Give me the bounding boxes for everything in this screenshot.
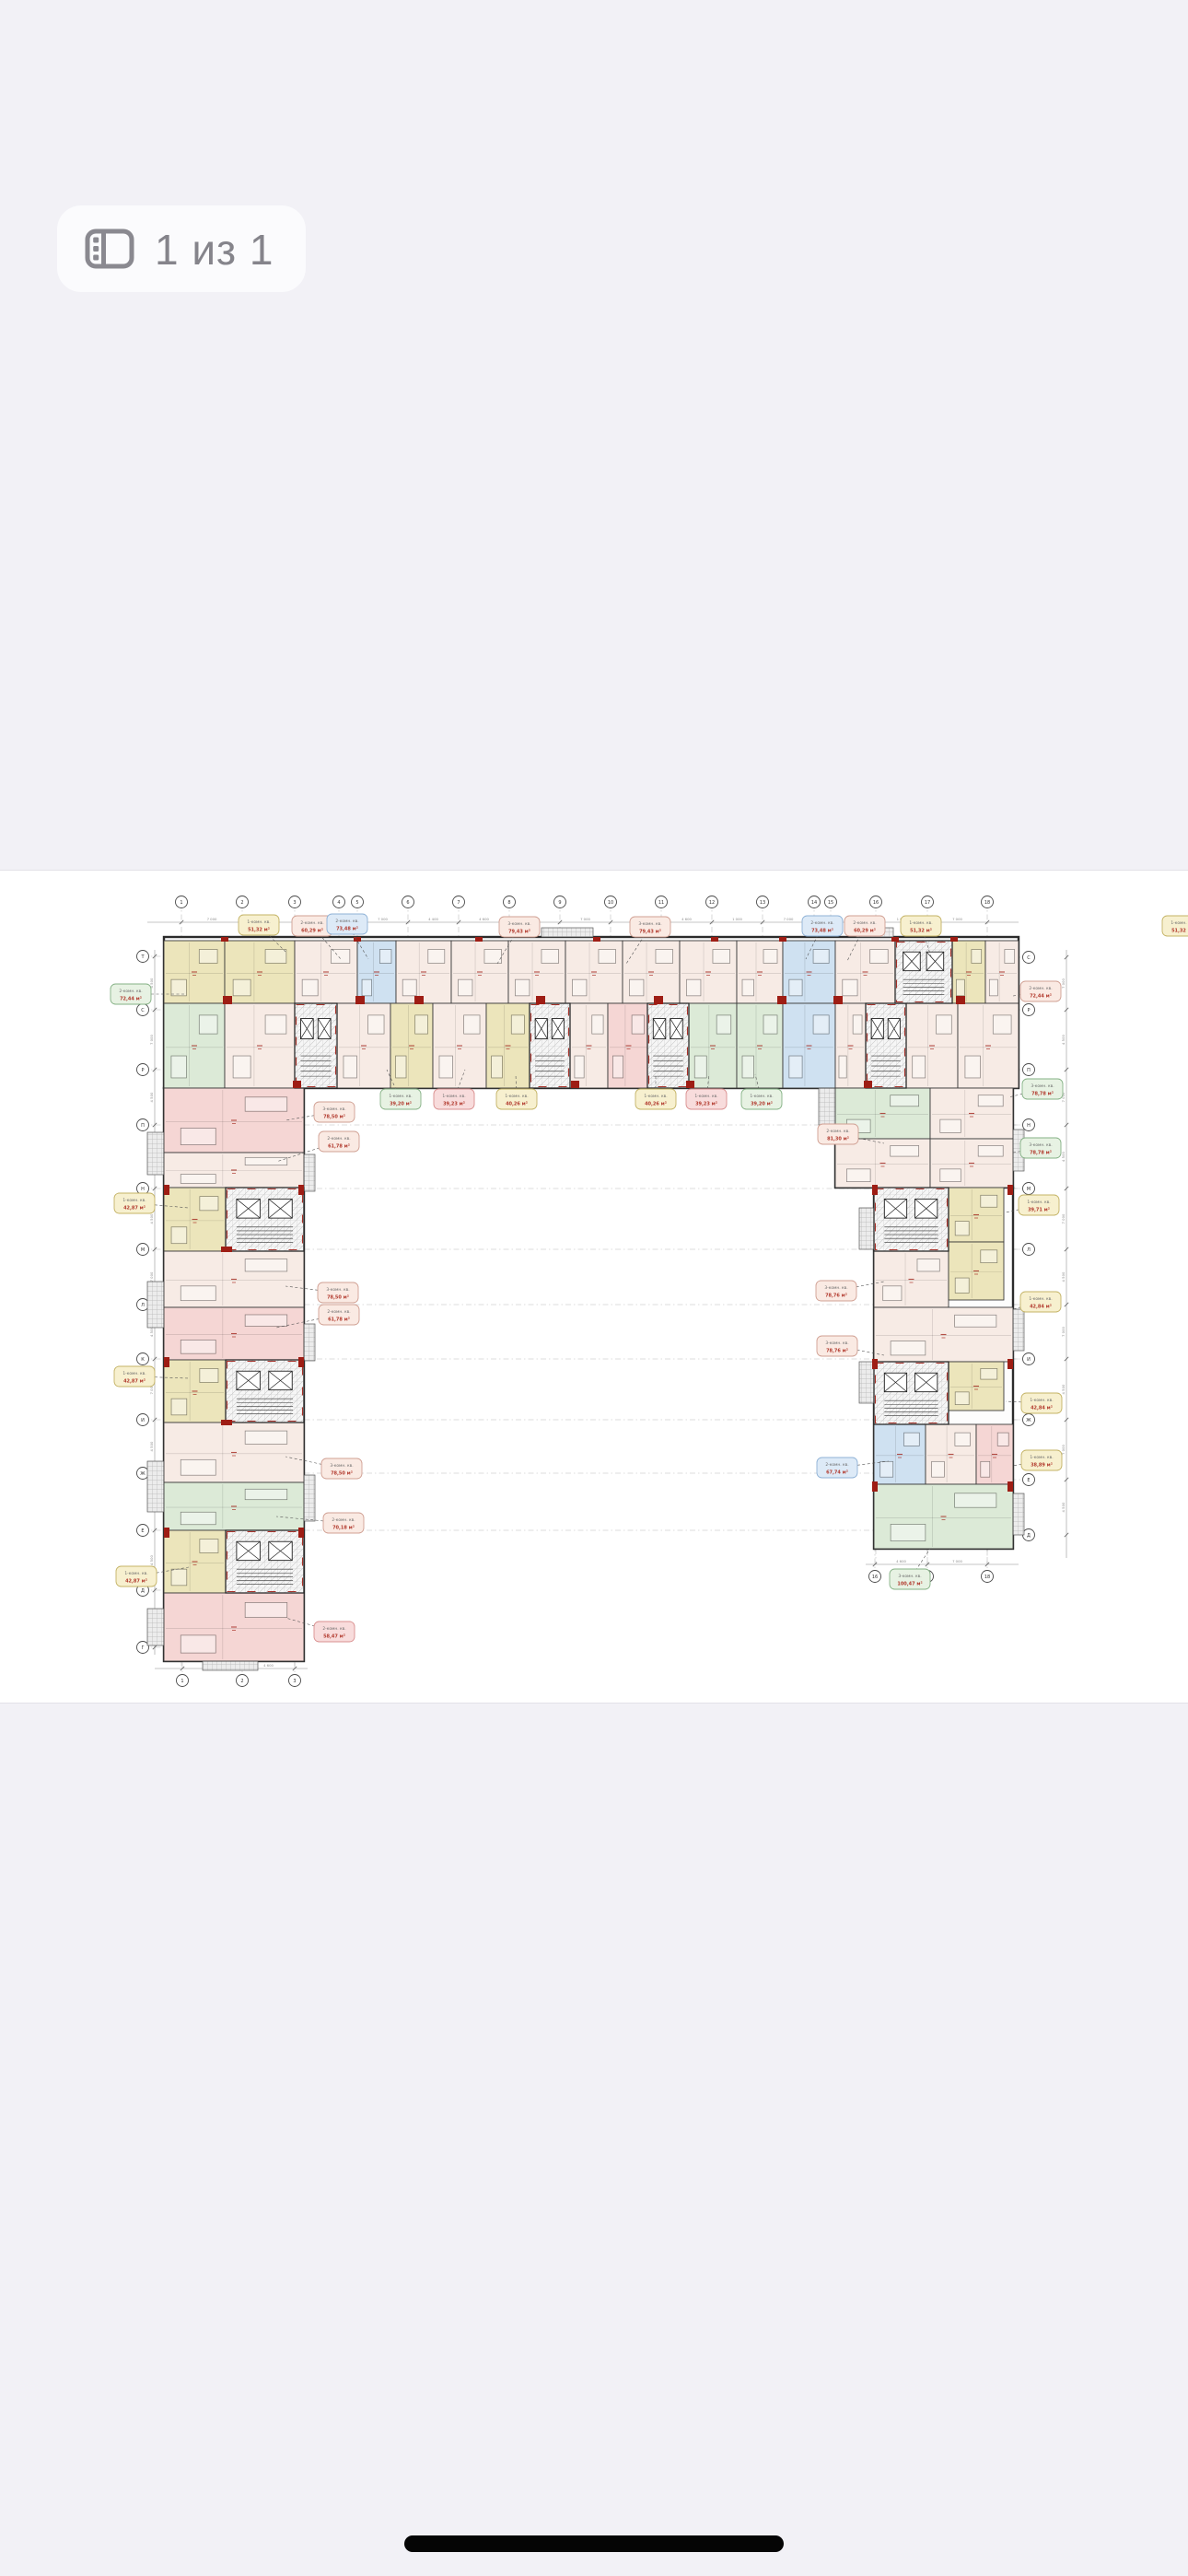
svg-text:2-комн. кв.: 2-комн. кв.	[825, 1462, 848, 1468]
svg-text:7 000: 7 000	[1061, 978, 1066, 988]
svg-text:4: 4	[337, 900, 340, 906]
svg-text:38,89 м²: 38,89 м²	[1031, 1462, 1053, 1468]
svg-text:60,29 м²: 60,29 м²	[301, 928, 323, 933]
svg-text:С: С	[1027, 955, 1031, 961]
svg-text:3-комн. кв.: 3-комн. кв.	[326, 1287, 349, 1293]
svg-text:3-комн. кв.: 3-комн. кв.	[898, 1574, 921, 1579]
svg-text:100,47 м²: 100,47 м²	[897, 1581, 922, 1587]
svg-text:4 500: 4 500	[1061, 1271, 1066, 1282]
svg-text:4 500: 4 500	[149, 1092, 154, 1102]
svg-text:16: 16	[873, 900, 879, 906]
svg-text:81,30 м²: 81,30 м²	[827, 1136, 849, 1142]
svg-text:4 400: 4 400	[428, 917, 438, 921]
svg-text:4 600: 4 600	[681, 917, 692, 921]
svg-text:С: С	[141, 1008, 145, 1013]
svg-text:4 600: 4 600	[263, 1663, 274, 1668]
svg-text:2-комн. кв.: 2-комн. кв.	[327, 1309, 350, 1315]
svg-text:М: М	[1027, 1187, 1031, 1192]
svg-text:1-комн. кв.: 1-комн. кв.	[909, 920, 932, 926]
svg-text:39,23 м²: 39,23 м²	[695, 1101, 717, 1107]
svg-text:39,71 м²: 39,71 м²	[1028, 1207, 1050, 1212]
svg-text:М: М	[141, 1247, 145, 1253]
svg-text:3: 3	[293, 900, 296, 906]
svg-text:4 500: 4 500	[1061, 1502, 1066, 1512]
svg-text:2-комн. кв.: 2-комн. кв.	[322, 1626, 345, 1632]
svg-text:3-комн. кв.: 3-комн. кв.	[322, 1107, 345, 1112]
svg-text:16: 16	[872, 1575, 878, 1580]
page-indicator-button[interactable]: 1 из 1	[57, 205, 306, 292]
svg-text:3-комн. кв.: 3-комн. кв.	[507, 921, 530, 927]
svg-text:1-комн. кв.: 1-комн. кв.	[694, 1094, 717, 1099]
svg-text:78,50 м²: 78,50 м²	[327, 1294, 349, 1300]
svg-text:18: 18	[984, 1575, 990, 1580]
svg-text:1-комн. кв.: 1-комн. кв.	[122, 1371, 146, 1376]
svg-text:2-комн. кв.: 2-комн. кв.	[332, 1517, 355, 1523]
svg-text:72,44 м²: 72,44 м²	[120, 996, 142, 1001]
svg-text:Г: Г	[141, 1645, 144, 1651]
svg-text:7 000: 7 000	[149, 1271, 154, 1282]
svg-text:1-комн. кв.: 1-комн. кв.	[750, 1094, 773, 1099]
svg-text:79,43 м²: 79,43 м²	[639, 929, 661, 934]
floor-plan-drawing: 123456789101112131415161718ТСРПНМЛКИЖЕДГ…	[0, 871, 1188, 1703]
svg-text:51,32 м²: 51,32 м²	[1171, 928, 1188, 933]
svg-text:78,50 м²: 78,50 м²	[331, 1470, 353, 1476]
svg-text:39,23 м²: 39,23 м²	[443, 1101, 465, 1107]
svg-text:1 000: 1 000	[732, 917, 742, 921]
svg-text:51,32 м²: 51,32 м²	[248, 927, 270, 932]
svg-text:40,26 м²: 40,26 м²	[506, 1101, 528, 1107]
svg-text:73,48 м²: 73,48 м²	[811, 928, 833, 933]
svg-text:4 600: 4 600	[479, 917, 489, 921]
svg-text:1-комн. кв.: 1-комн. кв.	[505, 1094, 528, 1099]
svg-text:61,78 м²: 61,78 м²	[328, 1143, 350, 1149]
svg-text:2-комн. кв.: 2-комн. кв.	[810, 920, 833, 926]
svg-text:Н: Н	[1027, 1123, 1031, 1129]
svg-text:2-комн. кв.: 2-комн. кв.	[1029, 986, 1052, 991]
svg-text:11: 11	[658, 900, 664, 906]
home-indicator[interactable]	[404, 2535, 784, 2552]
svg-text:Л: Л	[141, 1303, 145, 1308]
svg-text:1-комн. кв.: 1-комн. кв.	[124, 1571, 147, 1576]
svg-text:4 500: 4 500	[149, 1554, 154, 1564]
svg-text:78,78 м²: 78,78 м²	[1030, 1150, 1052, 1155]
svg-text:73,48 м²: 73,48 м²	[336, 926, 358, 931]
svg-text:8: 8	[507, 900, 510, 906]
svg-text:7 000: 7 000	[207, 917, 217, 921]
svg-text:1-комн. кв.: 1-комн. кв.	[1029, 1296, 1052, 1302]
svg-text:4 500: 4 500	[1061, 1034, 1066, 1044]
svg-text:7 000: 7 000	[378, 917, 388, 921]
svg-text:1-комн. кв.: 1-комн. кв.	[1030, 1398, 1053, 1403]
svg-text:13: 13	[760, 900, 765, 906]
svg-text:Р: Р	[1027, 1008, 1030, 1013]
svg-text:И: И	[1027, 1357, 1031, 1363]
svg-text:15: 15	[828, 900, 833, 906]
svg-text:Е: Е	[141, 1528, 144, 1534]
svg-text:2-комн. кв.: 2-комн. кв.	[300, 920, 323, 926]
svg-text:42,87 м²: 42,87 м²	[125, 1578, 147, 1584]
svg-text:7 000: 7 000	[784, 917, 794, 921]
svg-text:3-комн. кв.: 3-комн. кв.	[825, 1341, 848, 1346]
svg-text:42,84 м²: 42,84 м²	[1031, 1405, 1053, 1411]
svg-text:17: 17	[925, 900, 930, 906]
svg-text:И: И	[141, 1418, 145, 1423]
screen: 1 из 1 123456789101112131415161718ТСРПНМ…	[0, 0, 1188, 2576]
svg-text:Ж: Ж	[140, 1471, 146, 1477]
svg-text:Л: Л	[1027, 1247, 1031, 1253]
svg-text:12: 12	[709, 900, 715, 906]
svg-text:1-комн. кв.: 1-комн. кв.	[1030, 1455, 1053, 1460]
svg-text:Н: Н	[141, 1187, 145, 1192]
svg-text:14: 14	[811, 900, 817, 906]
thumbnails-sidebar-icon	[85, 228, 134, 269]
svg-text:39,20 м²: 39,20 м²	[751, 1101, 773, 1107]
svg-text:2: 2	[240, 1679, 243, 1684]
svg-text:18: 18	[984, 900, 990, 906]
svg-text:1: 1	[180, 900, 182, 906]
svg-text:4 500: 4 500	[1061, 1151, 1066, 1161]
document-canvas[interactable]: 123456789101112131415161718ТСРПНМЛКИЖЕДГ…	[0, 870, 1188, 1704]
svg-text:3-комн. кв.: 3-комн. кв.	[1029, 1142, 1052, 1148]
svg-text:3-комн. кв.: 3-комн. кв.	[1031, 1083, 1054, 1089]
svg-text:1-комн. кв.: 1-комн. кв.	[122, 1198, 146, 1203]
svg-text:67,74 м²: 67,74 м²	[826, 1469, 848, 1475]
svg-text:78,50 м²: 78,50 м²	[323, 1114, 345, 1119]
svg-text:78,78 м²: 78,78 м²	[1031, 1091, 1054, 1096]
svg-text:78,76 м²: 78,76 м²	[825, 1293, 847, 1298]
svg-text:1-комн. кв.: 1-комн. кв.	[442, 1094, 465, 1099]
svg-text:1-комн. кв.: 1-комн. кв.	[1027, 1200, 1050, 1205]
svg-text:7 000: 7 000	[149, 1034, 154, 1044]
svg-text:П: П	[141, 1123, 145, 1129]
svg-text:4 500: 4 500	[1061, 1384, 1066, 1394]
svg-text:10: 10	[608, 900, 613, 906]
svg-text:П: П	[1027, 1068, 1031, 1073]
svg-text:7 000: 7 000	[952, 917, 962, 921]
svg-text:3-комн. кв.: 3-комн. кв.	[638, 921, 661, 927]
svg-text:2-комн. кв.: 2-комн. кв.	[853, 920, 876, 926]
svg-text:42,87 м²: 42,87 м²	[123, 1205, 146, 1211]
svg-text:42,87 м²: 42,87 м²	[123, 1378, 146, 1384]
svg-text:7: 7	[457, 900, 460, 906]
svg-text:3-комн. кв.: 3-комн. кв.	[824, 1285, 847, 1291]
svg-text:58,47 м²: 58,47 м²	[323, 1633, 345, 1639]
svg-text:42,84 м²: 42,84 м²	[1030, 1304, 1052, 1309]
svg-text:Р: Р	[141, 1068, 144, 1073]
svg-text:Е: Е	[1027, 1478, 1030, 1483]
svg-text:1-комн. кв.: 1-комн. кв.	[247, 919, 270, 925]
svg-text:1-комн. кв.: 1-комн. кв.	[389, 1094, 412, 1099]
svg-text:40,26 м²: 40,26 м²	[645, 1101, 667, 1107]
svg-text:1: 1	[181, 1679, 183, 1684]
svg-text:51,32 м²: 51,32 м²	[910, 928, 932, 933]
svg-text:2: 2	[240, 900, 243, 906]
svg-text:4 600: 4 600	[896, 1559, 906, 1563]
svg-text:1-комн. кв.: 1-комн. кв.	[644, 1094, 667, 1099]
svg-text:Д: Д	[141, 1588, 145, 1594]
svg-text:2-комн. кв.: 2-комн. кв.	[327, 1136, 350, 1142]
svg-text:5: 5	[355, 900, 358, 906]
svg-text:7 000: 7 000	[580, 917, 590, 921]
svg-text:70,18 м²: 70,18 м²	[332, 1525, 355, 1530]
svg-text:6: 6	[406, 900, 409, 906]
svg-text:7 000: 7 000	[952, 1559, 962, 1563]
svg-text:К: К	[141, 1357, 145, 1363]
svg-text:2-комн. кв.: 2-комн. кв.	[826, 1129, 849, 1134]
svg-text:1-комн. кв.: 1-комн. кв.	[1171, 920, 1188, 926]
svg-text:2-комн. кв.: 2-комн. кв.	[335, 919, 358, 924]
svg-text:Д: Д	[1027, 1533, 1031, 1539]
svg-text:4 500: 4 500	[149, 1213, 154, 1224]
svg-text:3: 3	[293, 1679, 296, 1684]
svg-text:7 000: 7 000	[1061, 1326, 1066, 1336]
svg-text:61,78 м²: 61,78 м²	[328, 1317, 350, 1322]
svg-text:7 000: 7 000	[1061, 1213, 1066, 1224]
svg-text:3-комн. кв.: 3-комн. кв.	[330, 1463, 353, 1469]
svg-text:72,44 м²: 72,44 м²	[1030, 993, 1052, 999]
svg-text:78,76 м²: 78,76 м²	[826, 1348, 848, 1353]
svg-text:39,20 м²: 39,20 м²	[390, 1101, 412, 1107]
page-indicator-label: 1 из 1	[155, 227, 274, 271]
svg-text:4 500: 4 500	[149, 1441, 154, 1451]
svg-text:60,29 м²: 60,29 м²	[854, 928, 876, 933]
svg-text:9: 9	[558, 900, 561, 906]
svg-text:79,43 м²: 79,43 м²	[508, 929, 530, 934]
svg-text:Ж: Ж	[1026, 1418, 1031, 1423]
svg-text:2-комн. кв.: 2-комн. кв.	[119, 989, 142, 994]
